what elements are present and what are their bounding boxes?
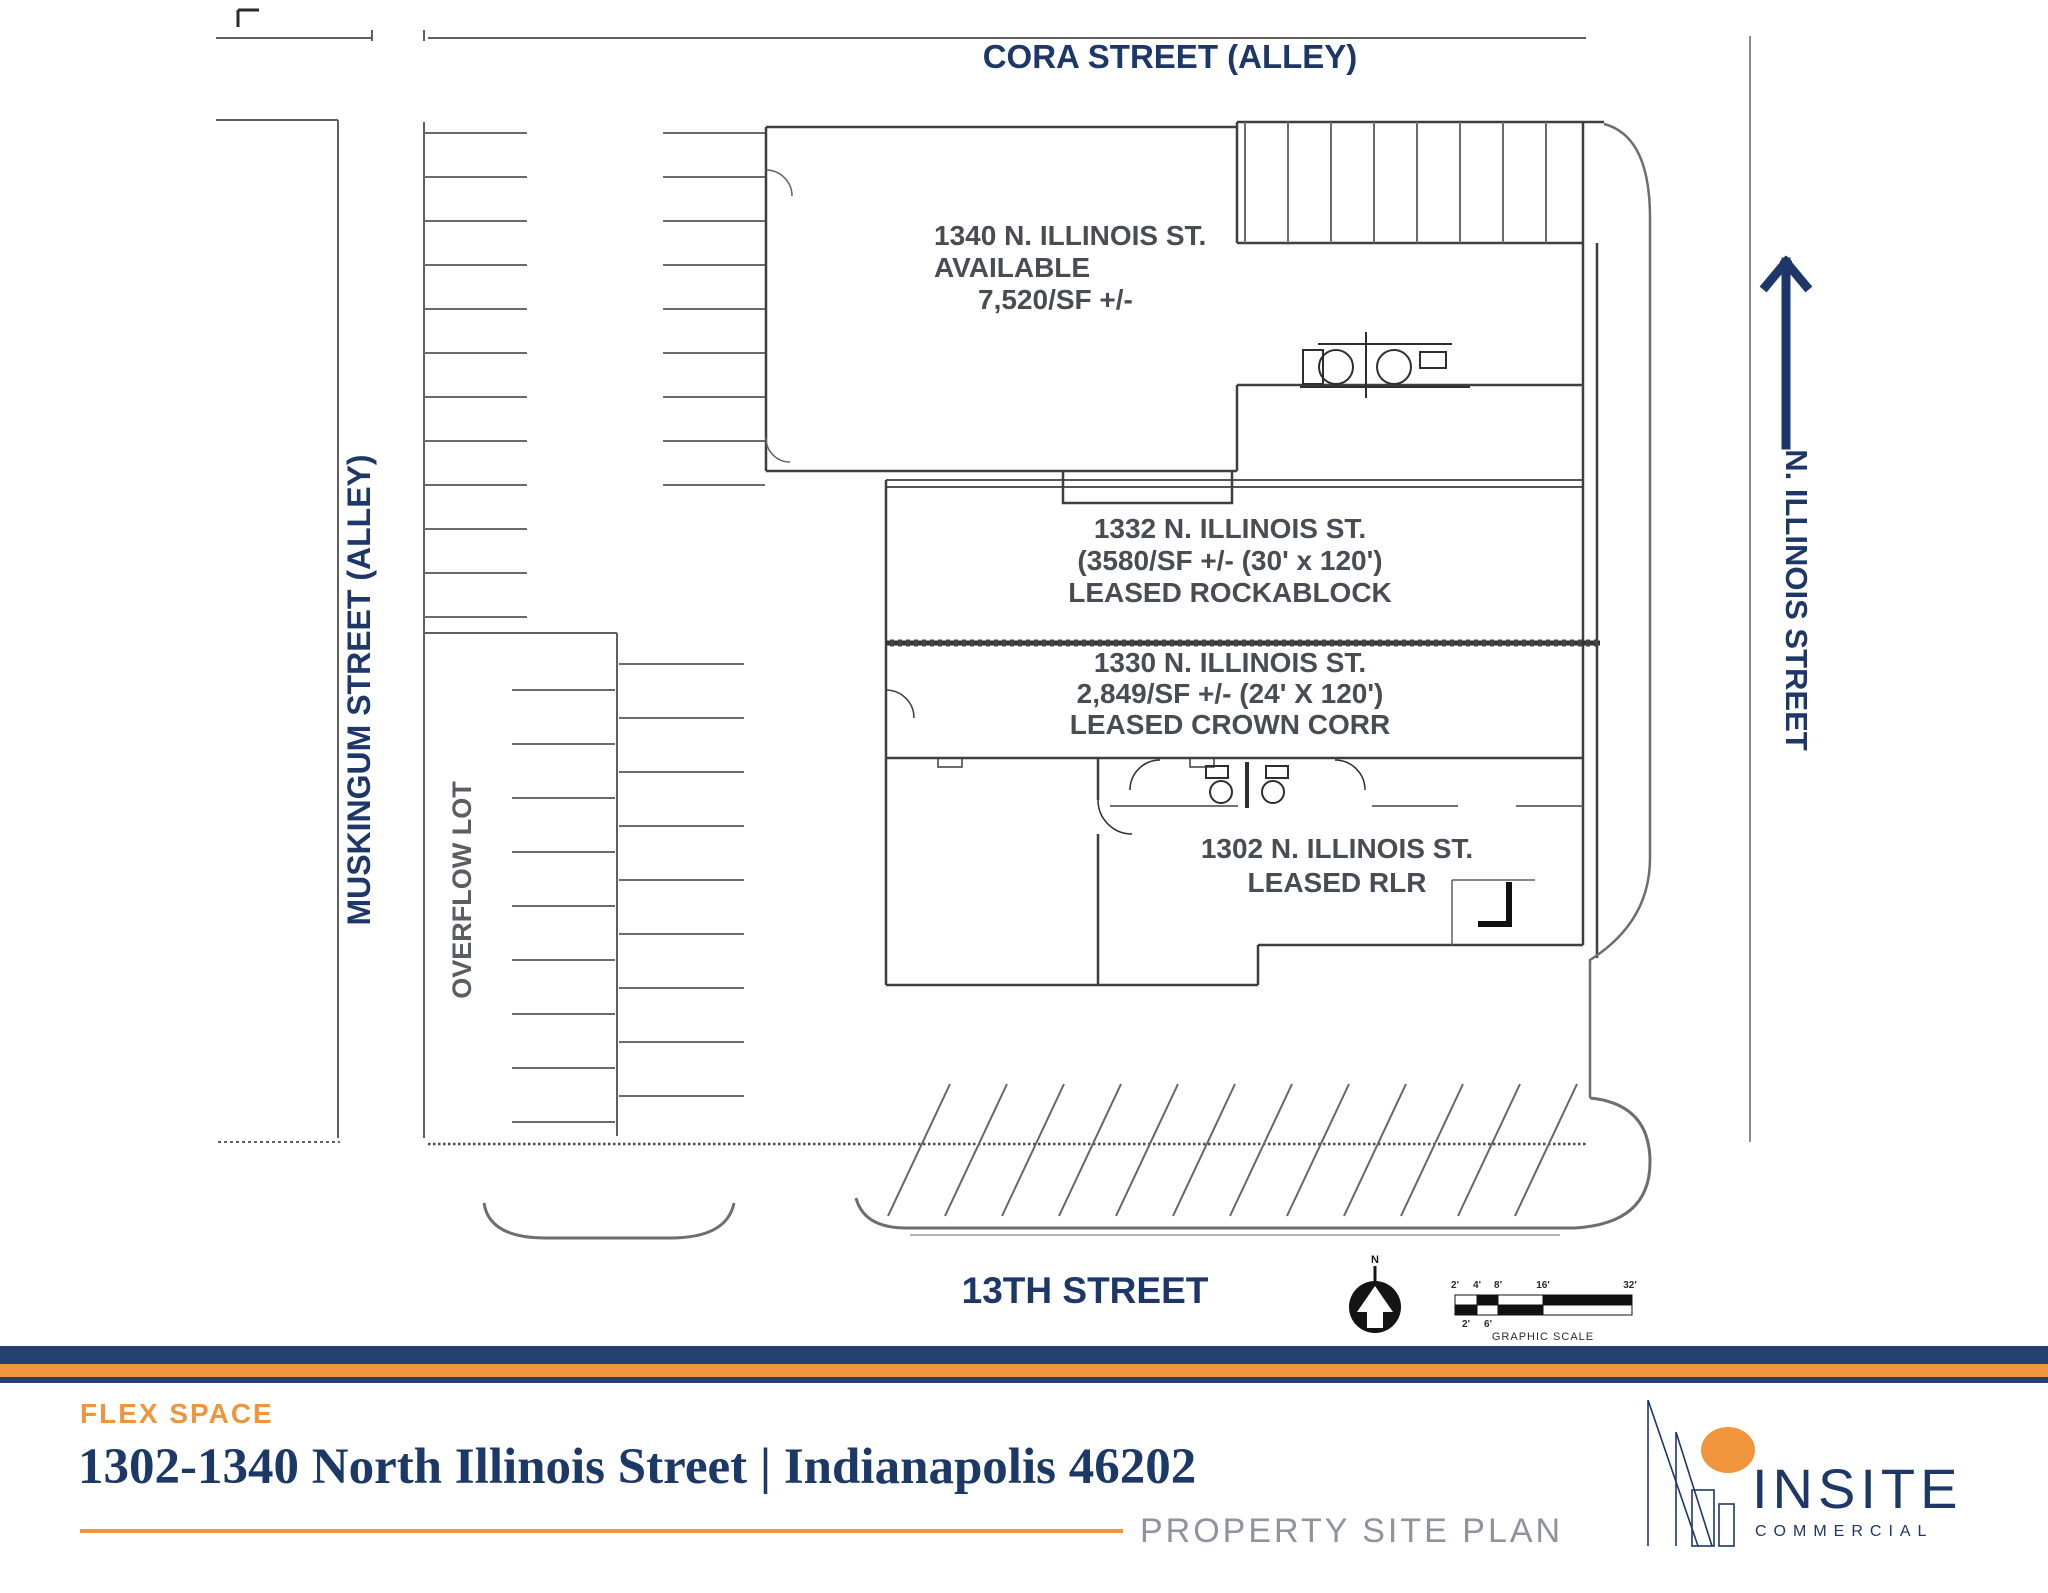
page-title: 1302-1340 North Illinois Street | Indian… bbox=[78, 1438, 1196, 1496]
plan-linework bbox=[216, 10, 1750, 1238]
cora-street-line bbox=[216, 30, 1586, 41]
graphic-scale-bar: 2' 4' 8' 16' 32' 2' 6' GRAPHIC SCALE bbox=[1451, 1280, 1637, 1343]
overflow-stripes-left bbox=[512, 690, 615, 1122]
parking-stripes-west bbox=[424, 133, 527, 617]
building-1332-label: 1332 N. ILLINOIS ST. (3580/SF +/- (30' x… bbox=[1068, 513, 1392, 608]
mechanical-units-icon bbox=[1300, 332, 1470, 398]
scale-tick: 32' bbox=[1623, 1280, 1637, 1291]
compass-north-icon: N bbox=[1349, 1254, 1401, 1333]
door-arc-icon bbox=[766, 170, 792, 462]
logo-sun-icon bbox=[1701, 1427, 1755, 1473]
building-1340-label: 1340 N. ILLINOIS ST. AVAILABLE 7,520/SF … bbox=[934, 220, 1206, 315]
property-category: FLEX SPACE bbox=[80, 1398, 274, 1430]
property-site-plan-page: CORA STREET (ALLEY) MUSKINGUM STREET (AL… bbox=[0, 0, 2048, 1593]
document-type-label: PROPERTY SITE PLAN bbox=[1140, 1512, 1563, 1551]
divider-bar-orange bbox=[0, 1364, 2048, 1377]
parking-stripes-east bbox=[663, 133, 765, 485]
scale-tick: 8' bbox=[1494, 1280, 1502, 1291]
entry-outline bbox=[1452, 880, 1535, 945]
scale-tick: 6' bbox=[1484, 1319, 1492, 1330]
divider-bar-navy-top bbox=[0, 1346, 2048, 1364]
corner-mark bbox=[238, 10, 259, 27]
street-label-n-illinois: N. ILLINOIS STREET bbox=[1779, 449, 1814, 750]
scale-tick: 4' bbox=[1473, 1280, 1481, 1291]
graphic-scale-caption: GRAPHIC SCALE bbox=[1492, 1331, 1594, 1343]
logo-brand-name: INSITE bbox=[1752, 1457, 1962, 1520]
building-label-line: 1302 N. ILLINOIS ST. bbox=[1201, 833, 1473, 864]
building-label-line: AVAILABLE bbox=[934, 252, 1090, 283]
east-curb bbox=[1590, 124, 1650, 1098]
street-label-cora: CORA STREET (ALLEY) bbox=[983, 38, 1358, 75]
overflow-lot-label: OVERFLOW LOT bbox=[447, 781, 477, 999]
building-label-line: 7,520/SF +/- bbox=[978, 284, 1133, 315]
north-direction-arrow-icon bbox=[1766, 262, 1806, 445]
overflow-stripes-right bbox=[619, 664, 744, 1096]
site-plan-drawing: CORA STREET (ALLEY) MUSKINGUM STREET (AL… bbox=[0, 0, 2048, 1345]
logo-brand-tagline: COMMERCIAL bbox=[1755, 1523, 1933, 1540]
building-1330-label: 1330 N. ILLINOIS ST. 2,849/SF +/- (24' X… bbox=[1070, 647, 1390, 740]
building-label-line: 1332 N. ILLINOIS ST. bbox=[1094, 513, 1366, 544]
restroom-fixtures-icon bbox=[1098, 760, 1365, 834]
south-curb bbox=[856, 1098, 1650, 1228]
scale-tick: 2' bbox=[1462, 1319, 1470, 1330]
angled-parking-stripes bbox=[888, 1084, 1577, 1216]
entry-frame-icon bbox=[1478, 882, 1509, 924]
building-1302-walls bbox=[886, 758, 1583, 985]
ne-parking-stalls bbox=[1245, 122, 1546, 243]
scale-tick: 2' bbox=[1451, 1280, 1459, 1291]
building-label-line: 1340 N. ILLINOIS ST. bbox=[934, 220, 1206, 251]
street-label-muskingum: MUSKINGUM STREET (ALLEY) bbox=[341, 454, 377, 925]
logo-building-icon bbox=[1648, 1400, 1734, 1546]
title-underline bbox=[80, 1529, 1123, 1533]
divider-bar-navy-bottom bbox=[0, 1377, 2048, 1383]
building-label-line: LEASED ROCKABLOCK bbox=[1068, 577, 1392, 608]
building-label-line: LEASED CROWN CORR bbox=[1070, 709, 1390, 740]
muskingum-alley-line bbox=[216, 120, 338, 1138]
insite-commercial-logo: INSITE COMMERCIAL bbox=[1640, 1396, 2000, 1551]
compass-n-label: N bbox=[1371, 1254, 1379, 1266]
building-label-line: 1330 N. ILLINOIS ST. bbox=[1094, 647, 1366, 678]
building-1302-label: 1302 N. ILLINOIS ST. LEASED RLR bbox=[1201, 833, 1473, 898]
scale-tick: 16' bbox=[1536, 1280, 1550, 1291]
west-curb bbox=[484, 1203, 734, 1238]
building-label-line: LEASED RLR bbox=[1248, 867, 1427, 898]
building-label-line: 2,849/SF +/- (24' X 120') bbox=[1077, 678, 1384, 709]
street-label-13th: 13TH STREET bbox=[962, 1270, 1209, 1311]
building-label-line: (3580/SF +/- (30' x 120') bbox=[1077, 545, 1382, 576]
